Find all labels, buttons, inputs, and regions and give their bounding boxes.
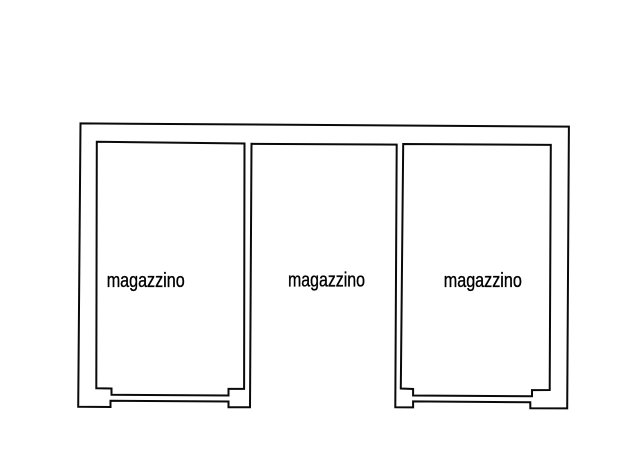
svg-text:magazzino: magazzino xyxy=(444,270,522,292)
svg-text:magazzino: magazzino xyxy=(107,270,185,292)
svg-text:magazzino: magazzino xyxy=(288,270,365,292)
